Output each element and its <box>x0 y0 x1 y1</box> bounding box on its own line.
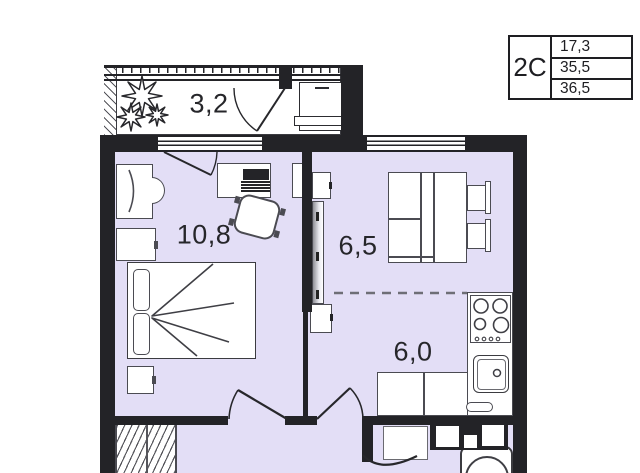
wall-divider-bedroom-living <box>302 152 312 312</box>
sink-inner-rim <box>477 359 506 390</box>
sink <box>473 355 509 393</box>
shower-tray <box>460 446 513 473</box>
balcony-glazing-ticks <box>104 68 341 73</box>
wall-bottom-left <box>100 416 228 425</box>
sofa-table-set <box>388 172 467 263</box>
stove <box>470 295 511 343</box>
kitchen-counter-bottom <box>377 372 468 416</box>
counter-divider <box>423 373 425 415</box>
chair-2-back <box>485 219 491 252</box>
laptop-screen-icon <box>243 169 269 180</box>
pillow-1 <box>133 269 150 311</box>
wall-bathroom-jamb <box>362 416 373 462</box>
window-bedroom <box>158 137 262 150</box>
kitchen-area-label: 6,0 <box>393 337 432 368</box>
dresser <box>116 228 156 261</box>
bedroom-area-label: 10,8 <box>177 220 232 251</box>
balcony-glazing-line-2 <box>104 74 341 76</box>
wardrobe-closet <box>115 423 177 473</box>
wall-divider-lower <box>303 308 308 420</box>
floor-plan-canvas: 3,2 10,8 6,5 6,0 2С 17,3 35,5 36,5 <box>0 0 640 473</box>
chair-2-seat <box>467 223 487 249</box>
counter-item <box>466 402 493 412</box>
sofa-table-divider <box>433 173 435 262</box>
vanity-table <box>116 164 153 219</box>
sliding-door-top-box <box>312 172 331 199</box>
balcony-side-glazing <box>104 66 117 135</box>
sofa-cushion-line <box>389 218 421 220</box>
chair-1-back <box>485 181 491 214</box>
sliding-door-handle <box>316 290 319 299</box>
washing-machine-lid <box>315 87 329 89</box>
window-living <box>367 137 465 150</box>
wall-bottom-stub <box>285 416 317 425</box>
balcony-glazing-top-line <box>104 65 341 68</box>
chair-1-seat <box>467 185 487 211</box>
unit-area-row: 17,3 <box>552 37 631 57</box>
duct-opening-3 <box>482 425 504 446</box>
balcony-glazing-line-3 <box>104 79 341 81</box>
pillow-2 <box>133 313 150 355</box>
balcony-area-label: 3,2 <box>189 89 228 120</box>
balcony-partition-post <box>279 65 292 89</box>
living-area-label: 6,5 <box>338 231 377 262</box>
unit-area-row: 35,5 <box>552 57 631 77</box>
unit-info-table: 2С 17,3 35,5 36,5 <box>508 35 633 100</box>
sofa-armrest-line <box>389 256 434 258</box>
sliding-door-handle <box>316 212 319 221</box>
sliding-door-handle <box>316 252 319 261</box>
nightstand <box>127 366 154 394</box>
sliding-door-bottom-box <box>310 304 332 333</box>
duct-opening-2 <box>464 435 477 448</box>
unit-type-label: 2С <box>510 37 552 98</box>
unit-area-row: 36,5 <box>552 78 631 98</box>
laptop-keyboard-icon <box>241 181 270 192</box>
duct-opening-1 <box>436 426 459 447</box>
washing-machine-bathroom <box>383 426 428 460</box>
